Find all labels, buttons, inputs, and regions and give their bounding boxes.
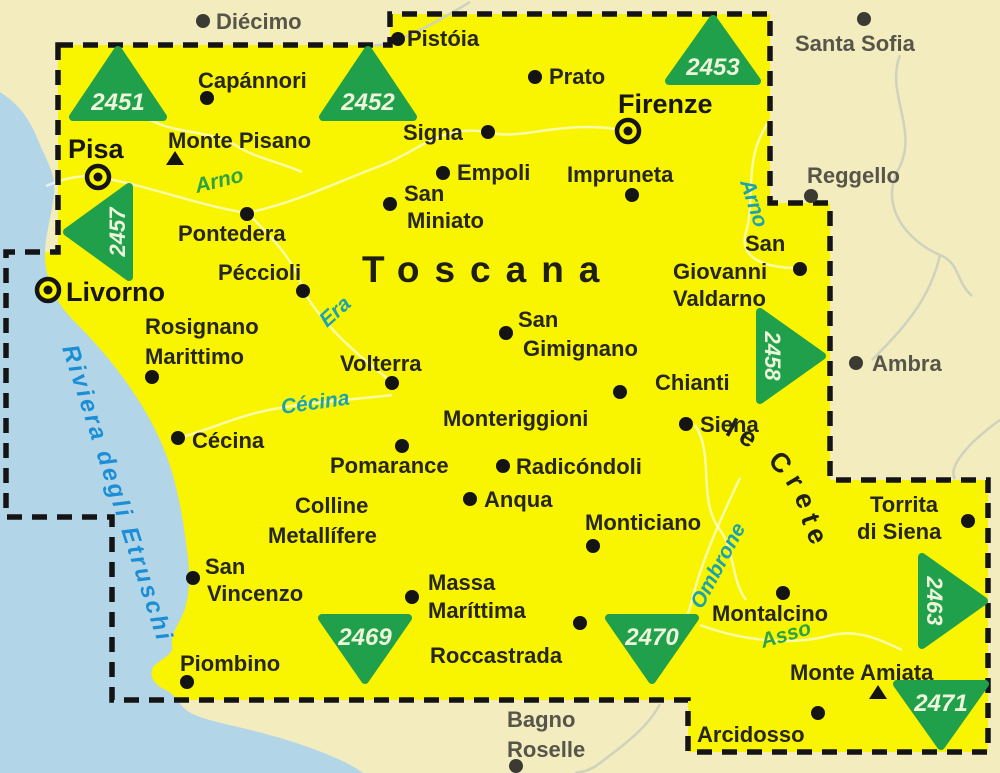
town-label-montalcino: Montalcino bbox=[712, 601, 828, 626]
sheet-number-2471: 2471 bbox=[913, 690, 967, 717]
city-dot-livorno bbox=[44, 286, 53, 295]
town-label-piombino: Piombino bbox=[180, 651, 280, 676]
town-dot-piombino bbox=[180, 675, 194, 689]
town-label-reggello: Reggello bbox=[807, 163, 900, 188]
area-label-colline-1: Colline bbox=[295, 493, 368, 518]
town-label-massa-1: Massa bbox=[428, 570, 496, 595]
town-label-cecina: Cécina bbox=[192, 428, 265, 453]
town-label-san-vincenzo-1: San bbox=[205, 554, 245, 579]
town-label-peccioli: Péccioli bbox=[218, 260, 301, 285]
town-dot-torrita bbox=[961, 514, 975, 528]
town-label-diecimo: Diécimo bbox=[216, 9, 302, 34]
town-label-pomarance: Pomarance bbox=[330, 453, 449, 478]
sheet-number-2452: 2452 bbox=[340, 89, 395, 116]
town-label-siena: Siena bbox=[700, 412, 759, 437]
town-dot-roccastrada bbox=[573, 616, 587, 630]
town-dot-volterra bbox=[385, 376, 399, 390]
town-label-torrita-1: Torrita bbox=[870, 492, 939, 517]
town-dot-diecimo bbox=[196, 14, 210, 28]
sheet-number-2458: 2458 bbox=[760, 331, 785, 382]
town-label-capannori: Capánnori bbox=[198, 68, 307, 93]
town-dot-capannori bbox=[200, 91, 214, 105]
town-dot-radicondoli bbox=[496, 459, 510, 473]
region-title: Toscana bbox=[362, 249, 614, 290]
town-label-arcidosso: Arcidosso bbox=[697, 722, 805, 747]
town-label-san-vincenzo-2: Vincenzo bbox=[207, 581, 303, 606]
town-label-rosignano-2: Marittimo bbox=[145, 344, 244, 369]
town-dot-empoli bbox=[436, 166, 450, 180]
town-label-san-gimignano-1: San bbox=[518, 307, 558, 332]
town-label-rosignano-1: Rosignano bbox=[145, 314, 259, 339]
town-dot-rosignano bbox=[145, 370, 159, 384]
town-dot-pontedera bbox=[240, 207, 254, 221]
sheet-number-2451: 2451 bbox=[90, 89, 144, 116]
town-dot-santa-sofia bbox=[857, 12, 871, 26]
town-dot-massa-marittima bbox=[405, 590, 419, 604]
map-canvas: Arno Arno Era Cécina Ombrone Asso Rivier… bbox=[0, 0, 1000, 773]
town-label-san-gimignano-2: Gimignano bbox=[523, 336, 638, 361]
town-label-monteriggioni: Monteriggioni bbox=[443, 406, 588, 431]
town-label-signa: Signa bbox=[403, 120, 464, 145]
city-dot-pisa bbox=[94, 173, 103, 182]
town-label-roselle: Roselle bbox=[507, 737, 585, 762]
town-dot-siena bbox=[679, 417, 693, 431]
town-label-torrita-2: di Siena bbox=[857, 519, 942, 544]
town-dot-reggello bbox=[804, 189, 818, 203]
town-dot-peccioli bbox=[296, 284, 310, 298]
town-label-massa-2: Maríttima bbox=[428, 598, 527, 623]
town-label-monte-pisano: Monte Pisano bbox=[168, 128, 311, 153]
town-dot-pistoia bbox=[391, 32, 405, 46]
town-dot-montalcino bbox=[776, 586, 790, 600]
town-label-empoli: Empoli bbox=[457, 160, 530, 185]
town-label-santa-sofia: Santa Sofia bbox=[795, 31, 916, 56]
town-dot-san-gimignano bbox=[499, 326, 513, 340]
town-label-impruneta: Impruneta bbox=[567, 162, 674, 187]
town-dot-signa bbox=[481, 125, 495, 139]
sheet-number-2470: 2470 bbox=[624, 624, 679, 651]
town-label-pistoia: Pistóia bbox=[407, 26, 480, 51]
sheet-number-2453: 2453 bbox=[685, 54, 740, 81]
town-label-sgv-2: Giovanni bbox=[673, 259, 767, 284]
town-dot-san-vincenzo bbox=[186, 571, 200, 585]
town-dot-monteriggioni bbox=[613, 385, 627, 399]
sheet-number-2457: 2457 bbox=[105, 206, 130, 258]
town-label-san-miniato-1: San bbox=[404, 181, 444, 206]
town-label-volterra: Volterra bbox=[340, 351, 422, 376]
area-label-chianti: Chianti bbox=[655, 370, 730, 395]
town-dot-cecina bbox=[171, 431, 185, 445]
town-label-sgv-3: Valdarno bbox=[673, 286, 766, 311]
city-label-firenze: Firenze bbox=[618, 89, 713, 119]
town-dot-monticiano bbox=[586, 539, 600, 553]
toscana-map-index: Arno Arno Era Cécina Ombrone Asso Rivier… bbox=[0, 0, 1000, 773]
area-label-colline-2: Metallífere bbox=[268, 523, 377, 548]
town-label-roccastrada: Roccastrada bbox=[430, 643, 563, 668]
town-label-bagno: Bagno bbox=[507, 707, 575, 732]
town-label-ambra: Ambra bbox=[872, 351, 942, 376]
town-dot-anqua bbox=[463, 492, 477, 506]
sheet-number-2463: 2463 bbox=[922, 576, 947, 626]
town-dot-pomarance bbox=[395, 439, 409, 453]
town-label-radicondoli: Radicóndoli bbox=[516, 454, 642, 479]
town-dot-ambra bbox=[849, 356, 863, 370]
town-label-prato: Prato bbox=[549, 64, 605, 89]
city-label-livorno: Livorno bbox=[66, 277, 165, 307]
town-label-anqua: Anqua bbox=[484, 487, 553, 512]
city-label-pisa: Pisa bbox=[68, 134, 125, 164]
sheet-number-2469: 2469 bbox=[337, 624, 392, 651]
town-dot-impruneta bbox=[625, 188, 639, 202]
city-dot-firenze bbox=[624, 127, 633, 136]
town-label-san-miniato-2: Miniato bbox=[407, 208, 484, 233]
town-dot-arcidosso bbox=[811, 706, 825, 720]
town-dot-san-miniato bbox=[383, 197, 397, 211]
town-label-sgv-1: San bbox=[745, 231, 785, 256]
town-label-pontedera: Pontedera bbox=[178, 221, 286, 246]
town-label-monticiano: Monticiano bbox=[585, 510, 701, 535]
town-dot-san-giovanni-valdarno bbox=[793, 262, 807, 276]
town-dot-prato bbox=[528, 70, 542, 84]
